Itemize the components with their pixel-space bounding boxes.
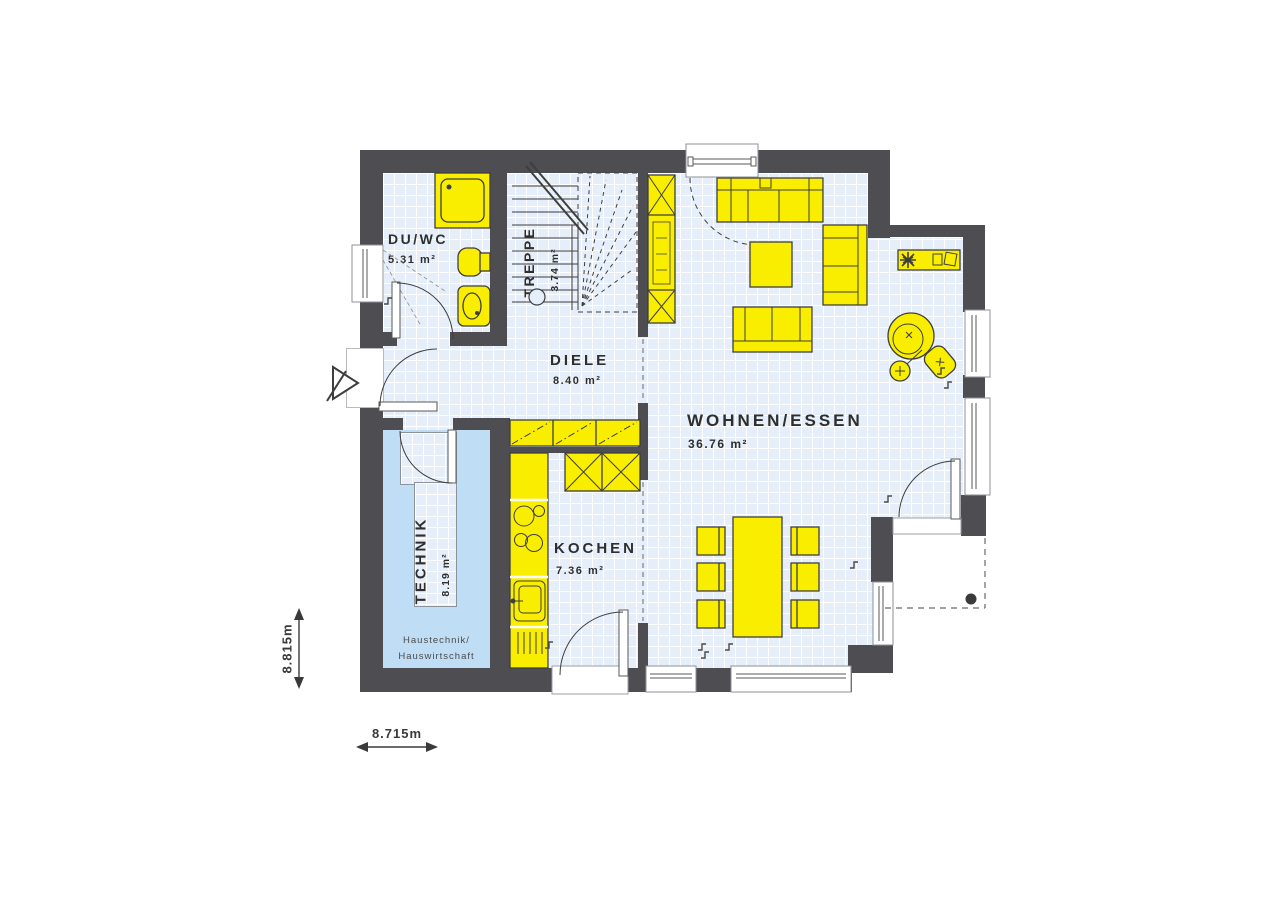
dimension-height-arrow [294, 608, 304, 689]
wall-kitchen-top [510, 447, 640, 453]
window-right-lower [965, 398, 990, 495]
technik-inner-zone [400, 432, 457, 485]
window-right-upper [965, 310, 990, 377]
wall-duwc-bottom-b [450, 332, 507, 346]
terrace-post [966, 594, 977, 605]
technik-sublabel-1: Haustechnik/ [383, 635, 490, 646]
room-area-kochen: 7.36 m² [556, 565, 604, 577]
room-label-duwc: DU/WC [388, 231, 448, 247]
room-label-kochen: KOCHEN [554, 540, 637, 557]
room-label-technik: TECHNIK [413, 506, 430, 616]
wall-se-corner [961, 495, 986, 536]
wall-left [360, 150, 383, 690]
wall-divider-lower [638, 623, 648, 668]
wall-bottom [360, 668, 852, 692]
dimension-width-arrow [356, 742, 438, 752]
wall-technik-right [490, 418, 510, 668]
entrance-recess [346, 348, 384, 408]
wall-se-bottom [848, 645, 893, 673]
wall-top [360, 150, 890, 173]
wall-divider-mid [638, 403, 648, 480]
dimension-width-label: 8.715m [361, 726, 433, 741]
room-area-duwc: 5.31 m² [388, 254, 436, 266]
room-area-diele: 8.40 m² [553, 375, 601, 387]
wall-right-pier [963, 375, 985, 398]
room-label-diele: DIELE [550, 352, 609, 369]
dimension-height-label: 8.815m [280, 609, 295, 689]
room-label-treppe: TREPPE [521, 216, 537, 308]
wall-duwc-bottom-a [383, 332, 397, 346]
room-area-treppe: 3.74 m² [549, 234, 561, 306]
outside-terrace-cut [893, 528, 963, 668]
room-area-technik: 8.19 m² [440, 540, 452, 610]
wall-technik-top-a [383, 418, 403, 430]
room-label-wohnen: WOHNEN/ESSEN [687, 411, 863, 431]
wall-duwc-right [490, 173, 507, 345]
wall-se-vert [871, 517, 893, 582]
floor-plan: DU/WC 5.31 m² TREPPE 3.74 m² DIELE 8.40 … [0, 0, 1280, 905]
wall-right-upper [963, 225, 985, 312]
wall-divider-upper [638, 173, 648, 337]
technik-sublabel-2: Hauswirtschaft [383, 651, 490, 662]
room-area-wohnen: 36.76 m² [688, 437, 748, 451]
